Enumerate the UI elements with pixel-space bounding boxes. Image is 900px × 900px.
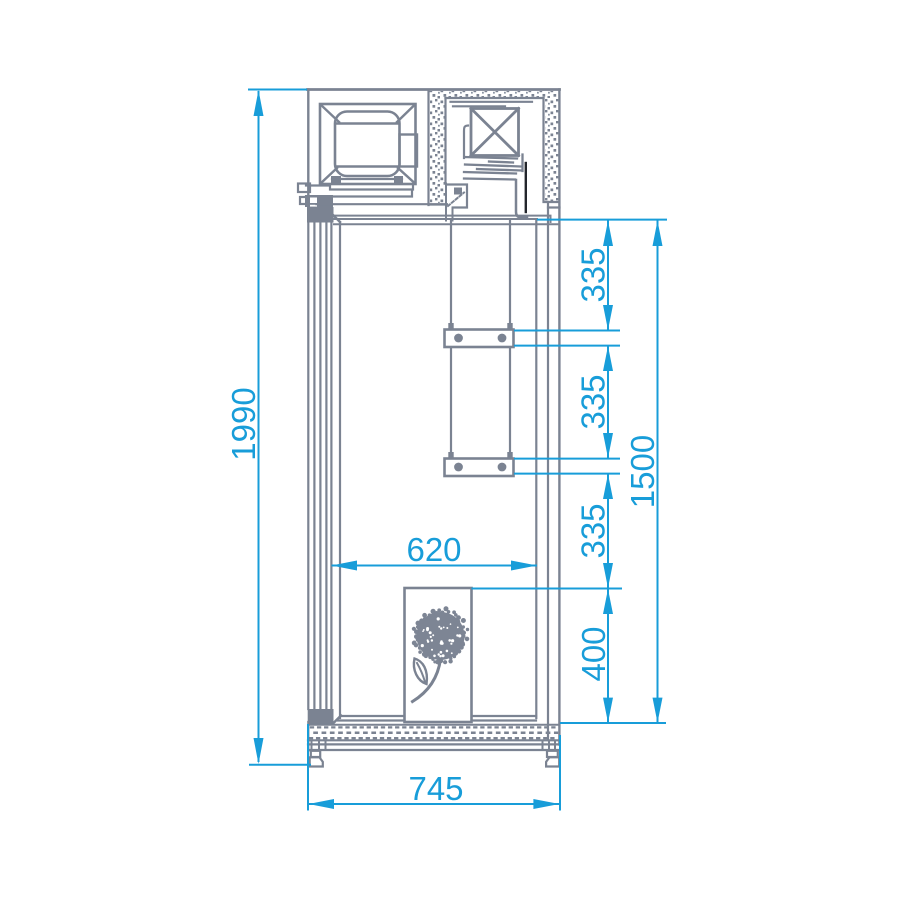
svg-text:335: 335 <box>575 374 612 429</box>
svg-text:620: 620 <box>406 531 461 568</box>
svg-text:335: 335 <box>575 503 612 558</box>
svg-text:1990: 1990 <box>225 387 262 460</box>
svg-text:1500: 1500 <box>624 435 661 508</box>
svg-text:335: 335 <box>575 247 612 302</box>
svg-text:400: 400 <box>575 626 612 681</box>
svg-text:745: 745 <box>408 770 463 807</box>
